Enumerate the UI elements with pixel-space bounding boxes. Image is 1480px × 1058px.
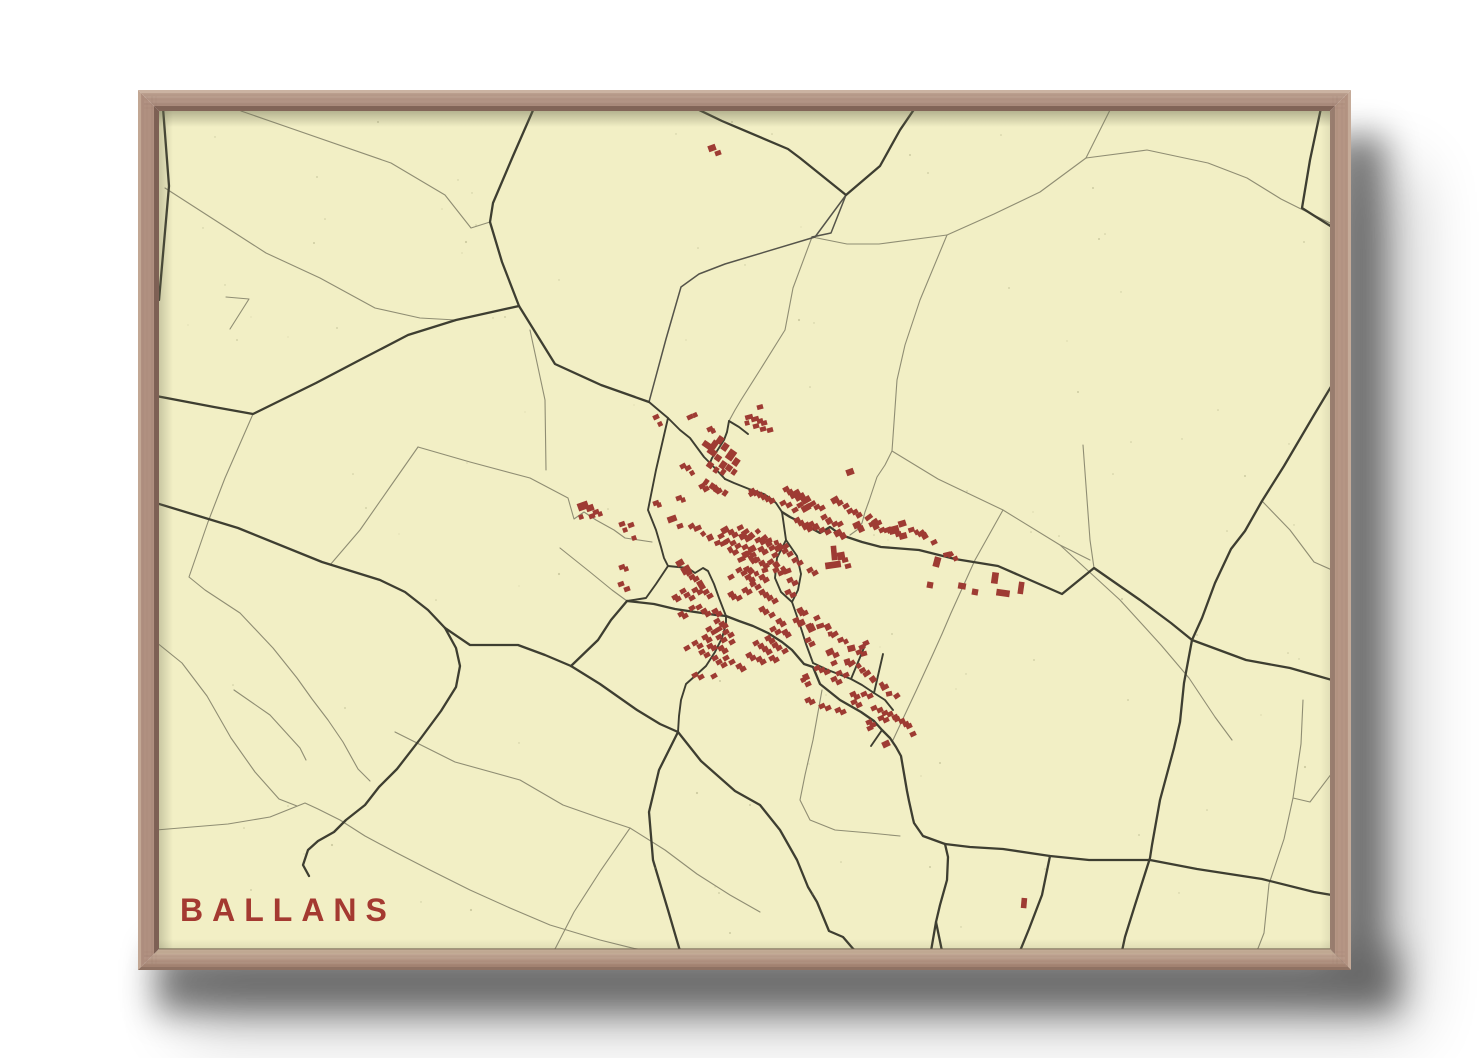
svg-text:BALLANS: BALLANS	[180, 892, 396, 928]
